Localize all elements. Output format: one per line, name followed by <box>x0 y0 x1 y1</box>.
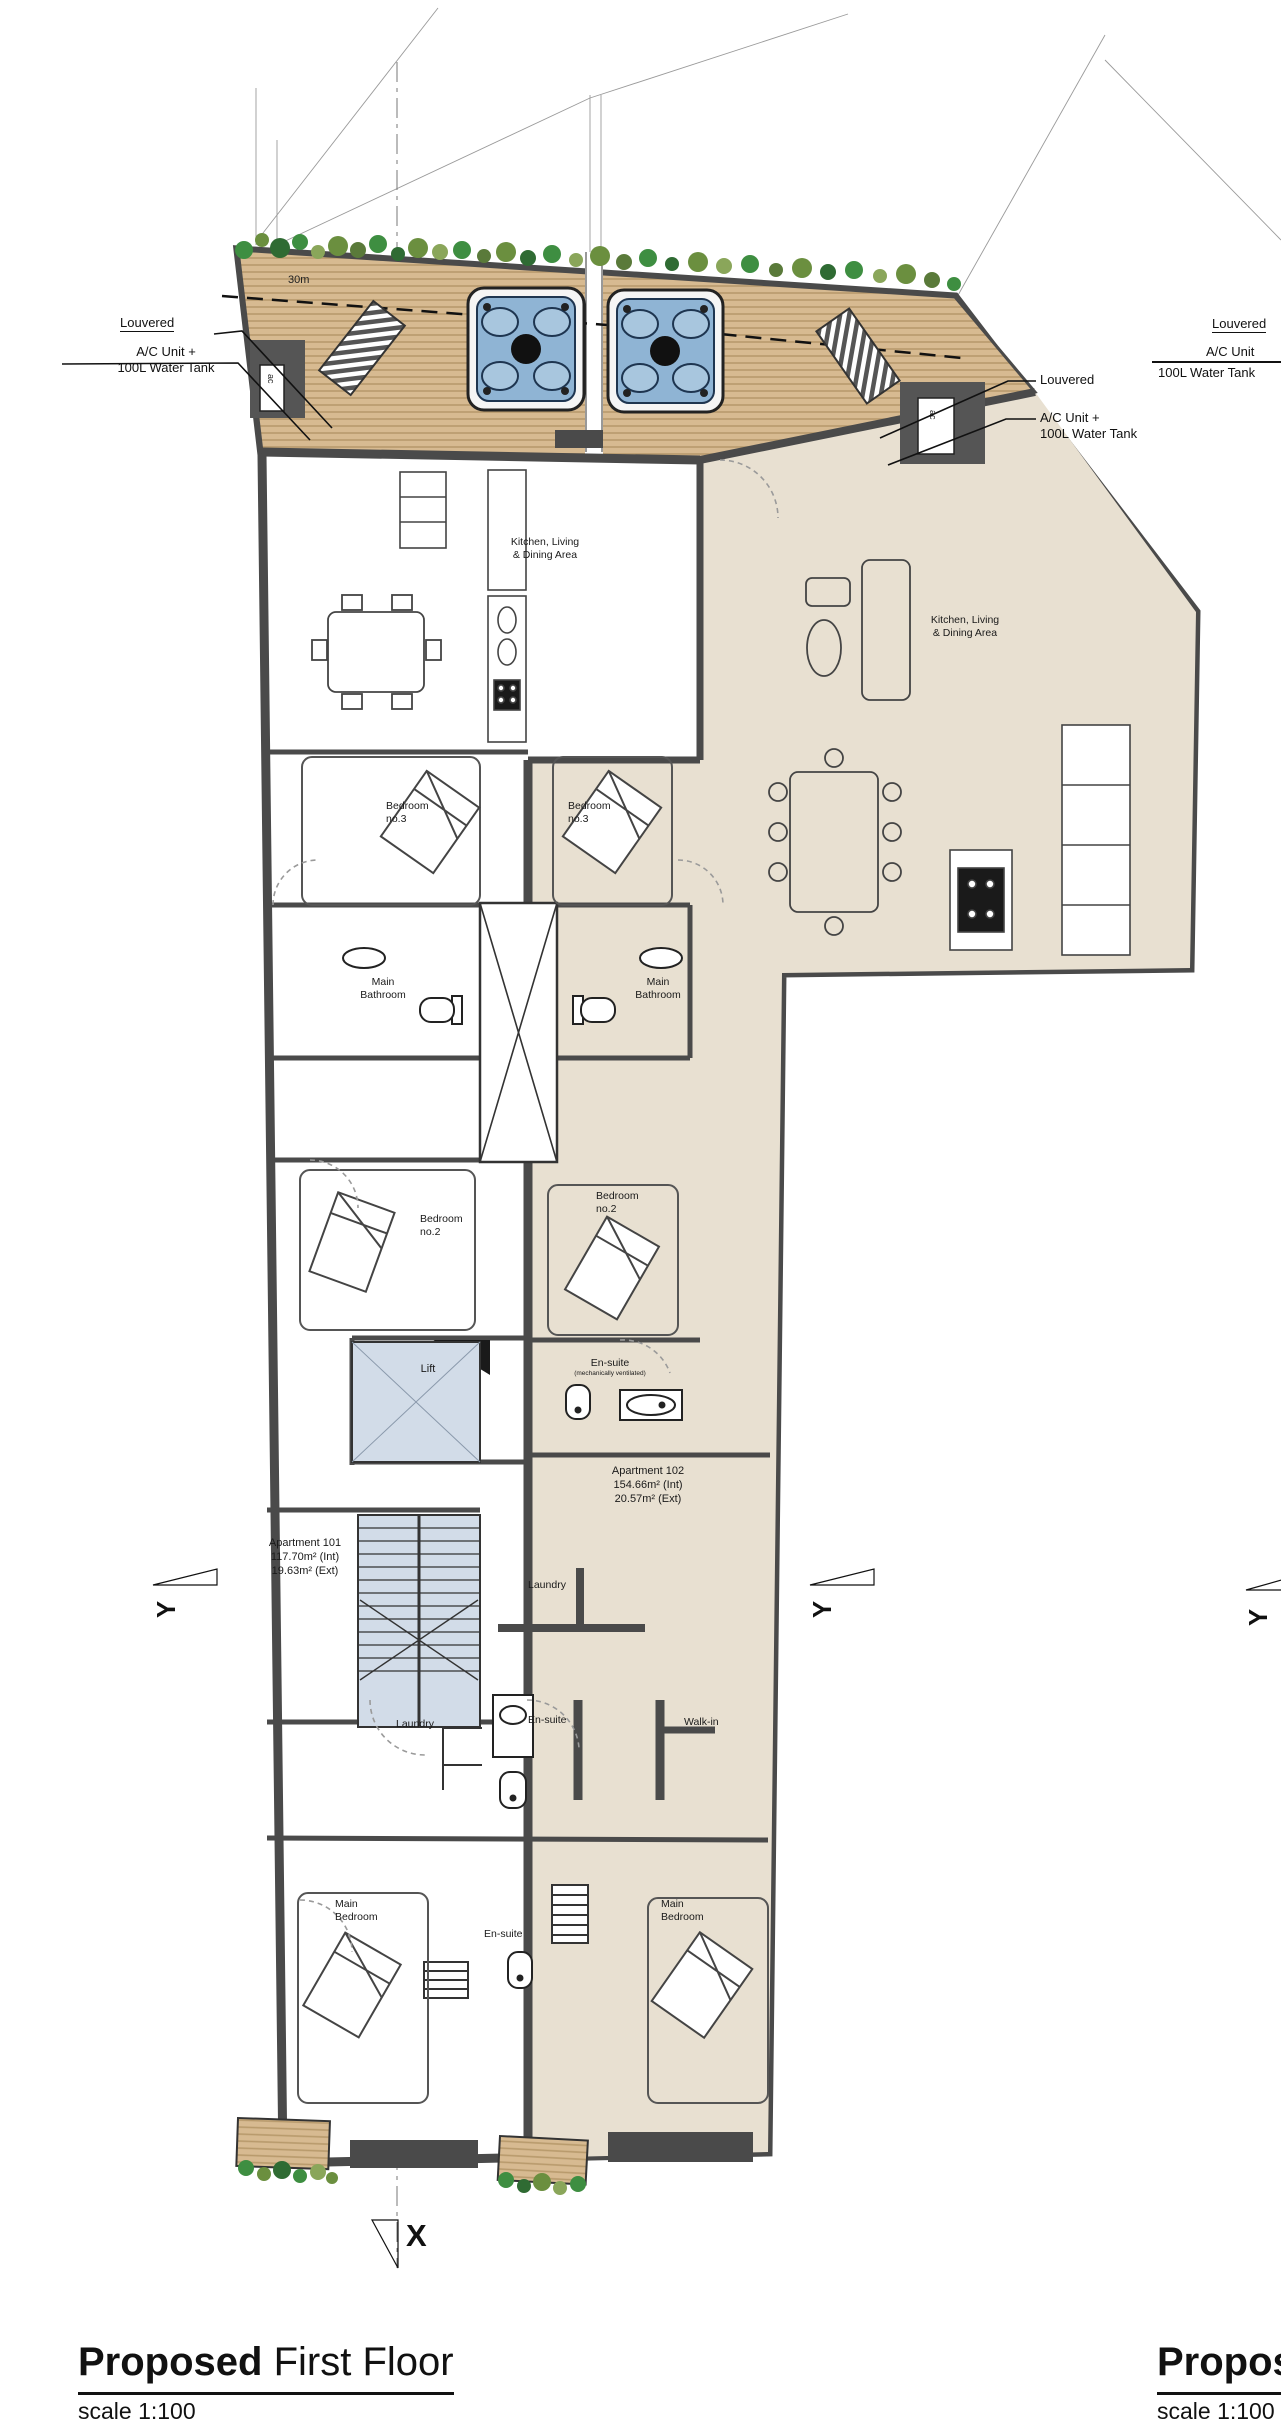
deck-dimension-label: 30m <box>288 274 309 286</box>
room-label-ensuite-mid: En-suite (mechanically ventilated) <box>555 1357 665 1378</box>
room-label-bedroom3-left: Bedroomno.3 <box>386 800 429 826</box>
section-marker-x: X <box>406 2218 427 2254</box>
section-marker-y-right: Y <box>807 1601 838 1618</box>
room-label-laundry-left: Laundry <box>396 1718 434 1731</box>
drawing-scale: scale 1:100 <box>78 2398 196 2425</box>
hot-tub-right <box>608 290 723 412</box>
floor-plan-sheet: ac ac <box>0 0 1281 2432</box>
drawing-title: Proposed First Floor <box>78 2340 454 2395</box>
callout-ac-left: A/C Unit + 100L Water Tank <box>96 344 236 376</box>
adjacent-ac-label: A/C Unit <box>1206 344 1254 360</box>
deck-gap <box>585 252 603 454</box>
room-label-walkin: Walk-in <box>684 1716 719 1729</box>
adjacent-drawing-scale: scale 1:100 <box>1157 2398 1275 2425</box>
callout-louvered-right: Louvered <box>1040 372 1094 388</box>
drawing-title-rest: First Floor <box>262 2340 453 2384</box>
room-label-bathroom-left: MainBathroom <box>345 976 421 1002</box>
apartment-102-label: Apartment 102 154.66m² (Int) 20.57m² (Ex… <box>588 1464 708 1506</box>
room-label-mainbed-left: MainBedroom <box>335 1898 378 1924</box>
staircase <box>358 1515 480 1727</box>
room-label-mainbed-right: MainBedroom <box>661 1898 704 1924</box>
room-label-bedroom3-right: Bedroomno.3 <box>568 800 611 826</box>
svg-text:ac: ac <box>266 374 276 384</box>
room-label-ensuite-bottom: En-suite <box>484 1928 523 1941</box>
room-label-ensuite-low: En-suite <box>528 1714 567 1727</box>
room-label-laundry-mid: Laundry <box>528 1579 566 1592</box>
drawing-title-bold: Proposed <box>78 2340 262 2384</box>
room-label-bedroom2-right: Bedroomno.2 <box>596 1190 639 1216</box>
adjacent-drawing-title: Proposed <box>1157 2340 1281 2395</box>
callout-louvered-left: Louvered <box>120 315 215 331</box>
hot-tub-left <box>468 288 584 410</box>
section-marker-y-left: Y <box>151 1601 182 1618</box>
room-label-lift: Lift <box>400 1363 456 1376</box>
lift-shaft <box>352 1342 480 1462</box>
void-shaft <box>480 903 557 1162</box>
room-label-bedroom2-left: Bedroomno.2 <box>420 1213 463 1239</box>
room-label-bathroom-right: MainBathroom <box>620 976 696 1002</box>
adjacent-tank-label: 100L Water Tank <box>1158 365 1255 381</box>
callout-ac-right: A/C Unit + 100L Water Tank <box>1040 410 1137 442</box>
room-label-kitchen-left: Kitchen, Living& Dining Area <box>470 536 620 562</box>
room-label-kitchen-right: Kitchen, Living& Dining Area <box>890 614 1040 640</box>
apartment-101-label: Apartment 101 117.70m² (Int) 19.63m² (Ex… <box>245 1536 365 1578</box>
adjacent-louvered-label: Louvered <box>1212 316 1266 332</box>
section-marker-y-far: Y <box>1243 1609 1274 1626</box>
